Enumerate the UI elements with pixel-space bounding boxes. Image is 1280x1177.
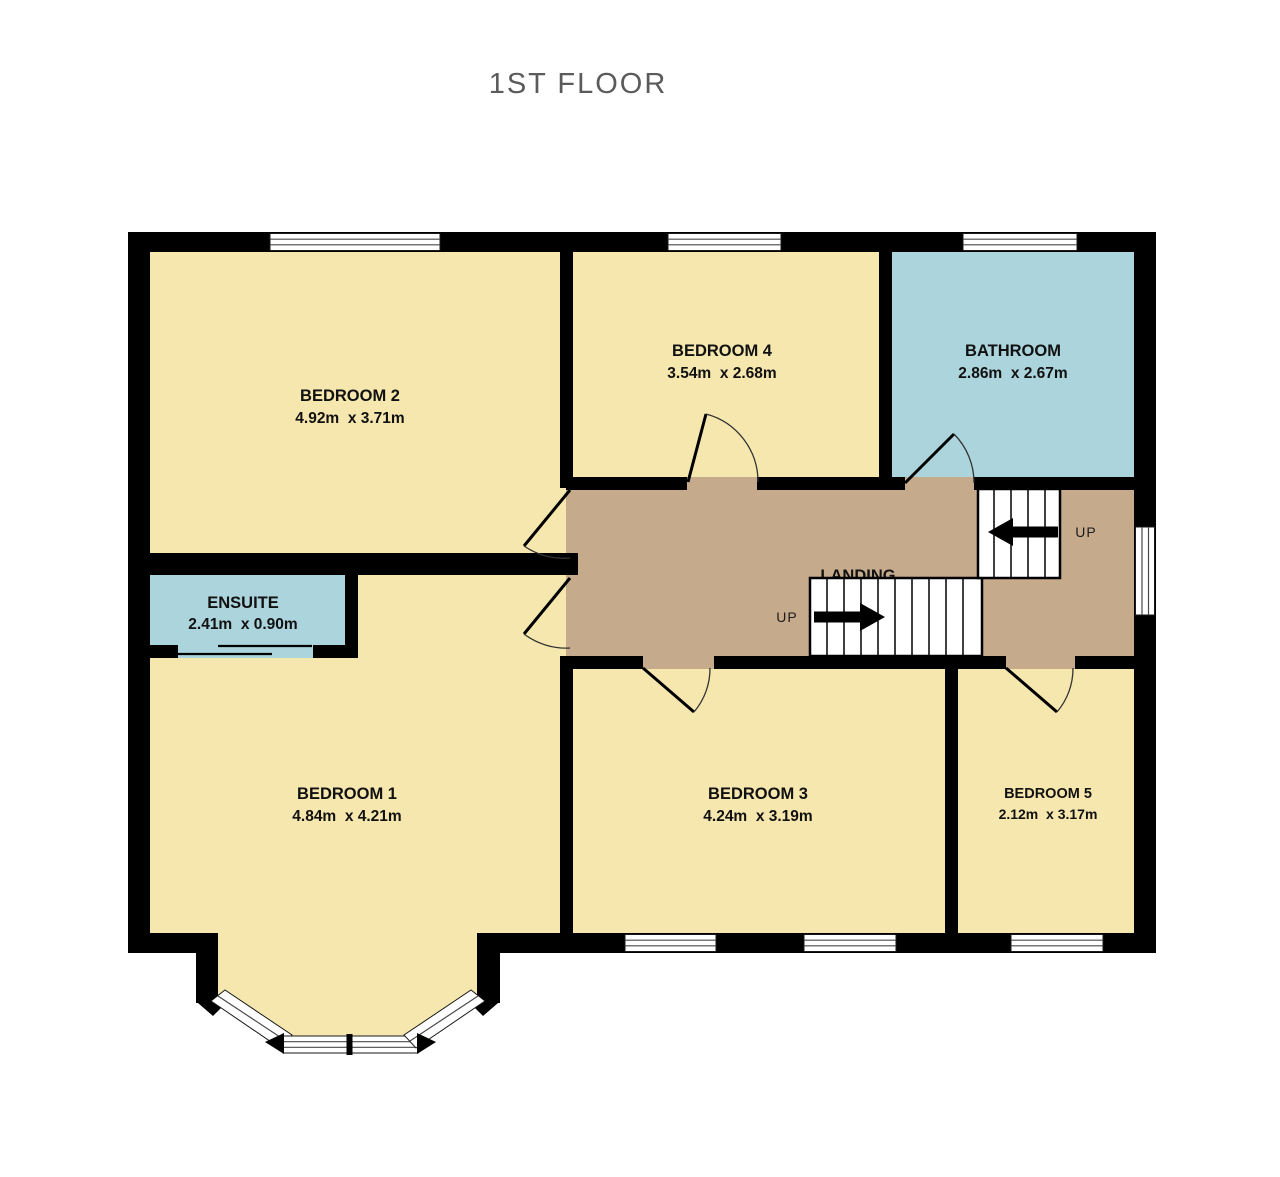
wall-bedroom1-bedroom3: [560, 656, 573, 945]
wall-outer-left: [128, 232, 150, 953]
window-bathroom-top: [963, 234, 1077, 251]
wall-landing-top-1: [566, 477, 687, 490]
window-bedroom3-bottom-2: [804, 935, 896, 952]
page-title: 1ST FLOOR: [489, 68, 668, 100]
wall-landing-bottom-3: [1075, 656, 1134, 669]
wall-ensuite-right: [345, 553, 358, 658]
bedroom5-label: BEDROOM 5: [1004, 786, 1092, 802]
bedroom3-dimensions: 4.24m x 3.19m: [703, 808, 812, 825]
bedroom2-label: BEDROOM 2: [300, 387, 400, 405]
bedroom4-label: BEDROOM 4: [672, 342, 773, 360]
bedroom4-dimensions: 3.54m x 2.68m: [667, 365, 776, 382]
wall-outer-bottom-left: [128, 933, 198, 953]
window-bedroom5-bottom: [1011, 935, 1103, 952]
window-landing-right: [1136, 527, 1155, 615]
up-label-lower: UP: [776, 609, 797, 625]
wall-ensuite-bottom-left: [140, 645, 178, 658]
bedroom1-label: BEDROOM 1: [297, 785, 397, 803]
ensuite-label: ENSUITE: [207, 594, 279, 612]
window-bedroom4-top: [668, 234, 781, 251]
wall-bedroom2-bottom: [140, 553, 578, 575]
floor-plan-page: 1ST FLOOR LANDING: [0, 0, 1280, 1177]
wall-landing-bottom-1: [560, 656, 643, 669]
room-fills: [140, 242, 1145, 1046]
bathroom-dimensions: 2.86m x 2.67m: [958, 365, 1067, 382]
wall-landing-top-3: [974, 477, 1134, 490]
bedroom5-dimensions: 2.12m x 3.17m: [999, 806, 1098, 822]
bedroom2-dimensions: 4.92m x 3.71m: [295, 410, 404, 427]
bedroom3-label: BEDROOM 3: [708, 785, 808, 803]
wall-bedroom4-bathroom: [879, 242, 892, 490]
bathroom-label: BATHROOM: [965, 342, 1061, 360]
window-bedroom2-top: [270, 234, 440, 251]
wall-bedroom3-bedroom5: [945, 656, 958, 945]
wall-bedroom2-bedroom4: [560, 242, 573, 488]
wall-ensuite-bottom-right: [313, 645, 358, 658]
floor-plan-drawing: 1ST FLOOR LANDING: [0, 0, 1280, 1177]
wall-bay-right: [477, 933, 500, 1003]
wall-landing-bottom-2: [714, 656, 1006, 669]
ensuite-dimensions: 2.41m x 0.90m: [188, 616, 297, 633]
bedroom1-bay-floor: [196, 930, 500, 1046]
bedroom1-dimensions: 4.84m x 4.21m: [292, 808, 401, 825]
up-label-upper: UP: [1075, 524, 1096, 540]
window-bedroom3-bottom-1: [625, 935, 716, 952]
bay-window-mullion: [347, 1034, 353, 1055]
wall-bay-left: [196, 933, 218, 1003]
